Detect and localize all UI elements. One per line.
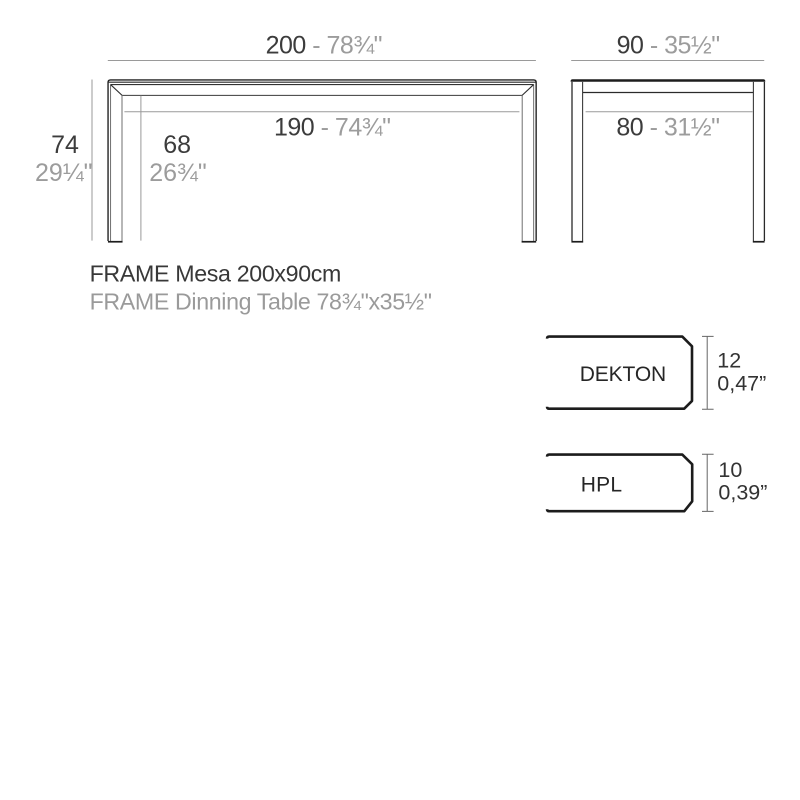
svg-text:80 - 31½": 80 - 31½"	[616, 114, 719, 142]
svg-text:HPL: HPL	[581, 473, 622, 496]
svg-text:74: 74	[51, 131, 79, 159]
svg-text:0,47”: 0,47”	[717, 372, 766, 396]
svg-text:12: 12	[717, 348, 741, 372]
svg-text:FRAME Dinning Table 78¾"x35½": FRAME Dinning Table 78¾"x35½"	[90, 289, 432, 315]
svg-text:29¼": 29¼"	[35, 159, 93, 187]
svg-text:FRAME Mesa 200x90cm: FRAME Mesa 200x90cm	[90, 261, 341, 287]
svg-text:26¾": 26¾"	[149, 159, 207, 187]
svg-text:0,39”: 0,39”	[718, 480, 767, 504]
svg-text:190 - 74¾": 190 - 74¾"	[274, 114, 390, 142]
svg-text:68: 68	[163, 131, 191, 159]
svg-text:DEKTON: DEKTON	[580, 363, 666, 386]
svg-text:10: 10	[718, 458, 742, 482]
svg-text:90 - 35½": 90 - 35½"	[617, 31, 720, 59]
svg-text:200 - 78¾": 200 - 78¾"	[266, 32, 382, 60]
